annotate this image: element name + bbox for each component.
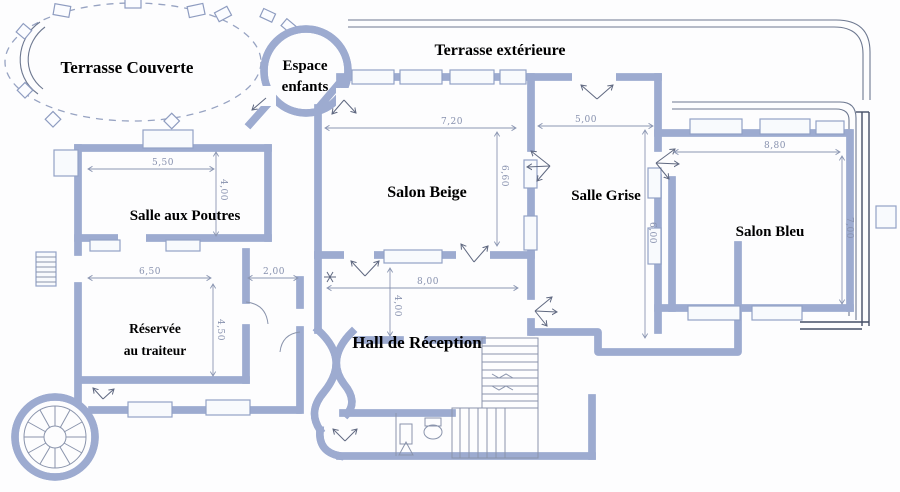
windows xyxy=(54,70,896,417)
dim-reservee-width: 6,50 xyxy=(139,267,161,277)
hatched-stair-box xyxy=(36,252,56,286)
room-label-espace-enfants-line2: enfants xyxy=(282,79,329,95)
room-label-salle-grise: Salle Grise xyxy=(571,188,641,204)
asterisk-mark xyxy=(324,272,336,282)
dim-salon-bleu-width: 8,80 xyxy=(764,141,786,151)
spiral-staircase-icon xyxy=(24,406,86,468)
room-label-salon-beige: Salon Beige xyxy=(387,184,467,201)
room-label-terrasse-couverte: Terrasse Couverte xyxy=(61,58,194,77)
room-label-terrasse-exterieure: Terrasse extérieure xyxy=(434,42,565,59)
door-arcs xyxy=(246,302,300,352)
door-openings xyxy=(118,69,616,262)
wc-area xyxy=(396,413,442,456)
room-label-hall-reception: Hall de Réception xyxy=(352,333,482,352)
exterior-terrace-edge xyxy=(348,20,870,320)
staircase-icon xyxy=(452,338,538,458)
dim-salle-aux-poutres-width: 5,50 xyxy=(152,158,174,168)
room-label-reservee-line2: au traiteur xyxy=(124,343,187,358)
dim-passage-width: 2,00 xyxy=(263,267,285,277)
dim-salle-grise-depth: 6,00 xyxy=(647,222,657,244)
dim-salon-bleu-depth: 7,00 xyxy=(844,217,854,239)
dim-salon-beige-depth: 6,60 xyxy=(499,165,509,187)
dim-hall-width: 8,00 xyxy=(417,277,439,287)
room-label-reservee-line1: Réservée xyxy=(129,321,181,336)
dim-salle-aux-poutres-depth: 4,00 xyxy=(218,179,228,201)
dim-reservee-depth: 4,50 xyxy=(215,319,225,341)
dim-salle-grise-width: 5,00 xyxy=(575,115,597,125)
floor-plan: 5,50 4,00 6,50 2,00 4,50 7,20 6,60 5,00 … xyxy=(0,0,900,492)
toilet-icon xyxy=(424,418,442,439)
room-label-salle-aux-poutres: Salle aux Poutres xyxy=(130,208,241,224)
dim-hall-depth: 4,00 xyxy=(392,295,402,317)
floor-plan-svg: 5,50 4,00 6,50 2,00 4,50 7,20 6,60 5,00 … xyxy=(0,0,900,492)
dim-salon-beige-width: 7,20 xyxy=(441,117,463,127)
window-bay xyxy=(800,112,869,329)
room-label-espace-enfants-line1: Espace xyxy=(283,58,328,74)
room-label-salon-bleu: Salon Bleu xyxy=(736,224,805,240)
